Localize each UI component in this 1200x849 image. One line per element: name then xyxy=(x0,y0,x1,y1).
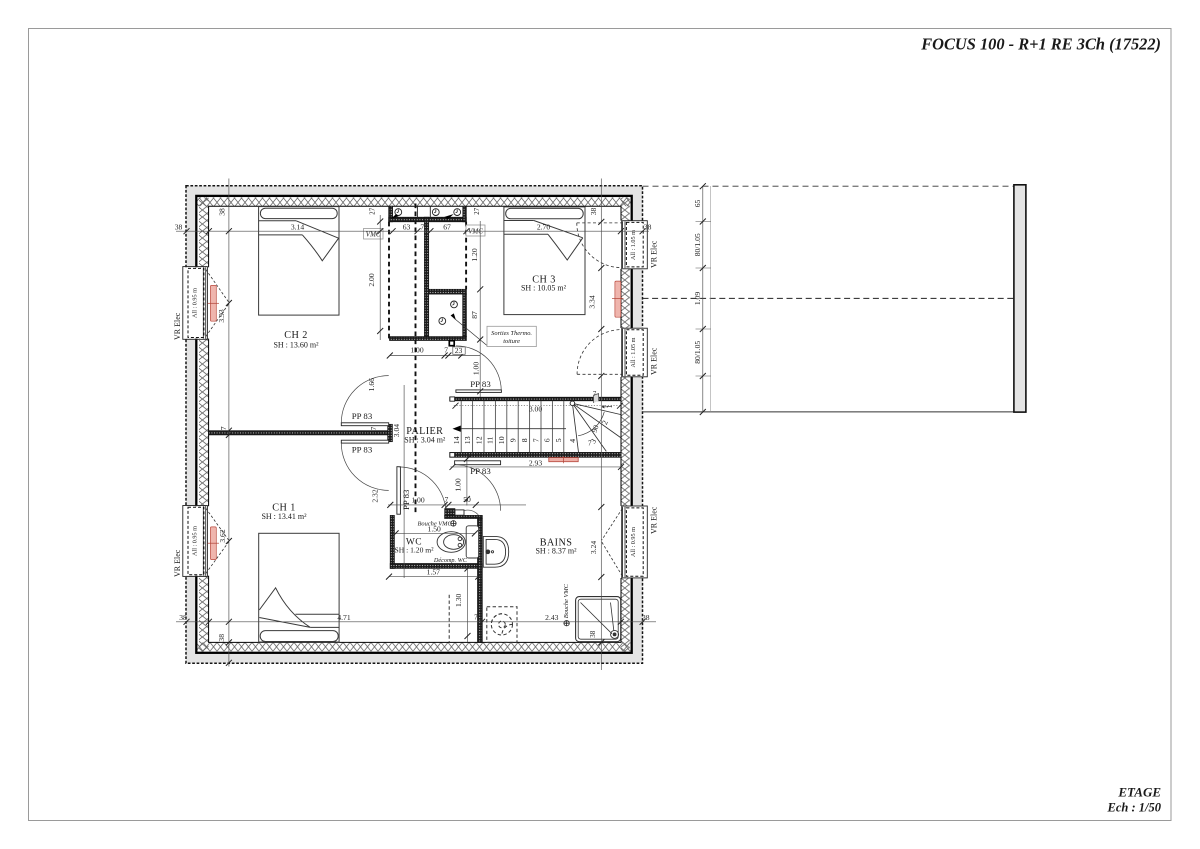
svg-text:SH : 1.20 m²: SH : 1.20 m² xyxy=(395,546,435,555)
svg-text:14: 14 xyxy=(452,436,461,444)
svg-text:5: 5 xyxy=(554,438,563,442)
svg-text:3.93: 3.93 xyxy=(217,309,226,322)
svg-text:65: 65 xyxy=(693,200,702,208)
svg-text:PP 83: PP 83 xyxy=(470,379,491,389)
svg-text:All : 0.95 m: All : 0.95 m xyxy=(191,288,198,318)
svg-text:7: 7 xyxy=(531,438,540,442)
svg-text:All : 0.95 m: All : 0.95 m xyxy=(630,527,637,557)
svg-text:PP 83: PP 83 xyxy=(352,411,373,421)
svg-text:27: 27 xyxy=(474,207,481,214)
svg-text:VR Elec: VR Elec xyxy=(649,240,658,268)
svg-text:6: 6 xyxy=(543,438,552,442)
svg-text:7: 7 xyxy=(588,441,592,448)
svg-text:7: 7 xyxy=(420,223,424,232)
svg-text:VR Elec: VR Elec xyxy=(173,549,182,577)
svg-text:50: 50 xyxy=(463,495,471,504)
svg-text:38: 38 xyxy=(589,208,598,216)
svg-text:PP 83: PP 83 xyxy=(352,445,373,455)
svg-text:7: 7 xyxy=(444,346,448,355)
svg-text:FOCUS 100 - R+1 RE 3Ch (17522): FOCUS 100 - R+1 RE 3Ch (17522) xyxy=(920,35,1161,54)
svg-text:3.04: 3.04 xyxy=(392,424,401,437)
svg-text:Sorties Thermo.: Sorties Thermo. xyxy=(491,330,532,337)
svg-text:1.00: 1.00 xyxy=(410,346,423,355)
svg-text:All : 1.05 m: All : 1.05 m xyxy=(630,337,637,367)
svg-text:SH : 13.60 m²: SH : 13.60 m² xyxy=(273,341,319,350)
svg-text:VMC: VMC xyxy=(366,231,381,239)
svg-text:67: 67 xyxy=(443,223,451,232)
svg-text:2.00: 2.00 xyxy=(367,273,376,286)
svg-text:9: 9 xyxy=(509,438,518,442)
svg-text:1.00: 1.00 xyxy=(454,478,463,491)
svg-text:27: 27 xyxy=(370,207,377,214)
svg-text:12: 12 xyxy=(474,436,483,444)
svg-text:80/1.05: 80/1.05 xyxy=(693,341,702,364)
svg-text:SH : 10.05 m²: SH : 10.05 m² xyxy=(521,284,567,293)
svg-text:38: 38 xyxy=(175,223,183,232)
svg-text:38: 38 xyxy=(179,613,187,622)
svg-text:3.34: 3.34 xyxy=(588,295,597,308)
svg-text:toiture: toiture xyxy=(503,338,520,345)
svg-text:4.71: 4.71 xyxy=(337,613,350,622)
svg-text:38: 38 xyxy=(642,613,650,622)
svg-text:1.57: 1.57 xyxy=(427,568,440,577)
svg-text:1.20: 1.20 xyxy=(470,248,479,261)
svg-text:23: 23 xyxy=(455,346,463,355)
svg-text:Ech : 1/50: Ech : 1/50 xyxy=(1107,801,1162,815)
svg-text:VR Elec: VR Elec xyxy=(173,312,182,340)
svg-text:7: 7 xyxy=(474,615,478,622)
svg-text:VR Elec: VR Elec xyxy=(649,347,658,375)
svg-text:SH : 3.04 m²: SH : 3.04 m² xyxy=(404,436,446,445)
svg-text:2.70: 2.70 xyxy=(537,223,550,232)
svg-text:SH : 8.37 m²: SH : 8.37 m² xyxy=(535,547,577,556)
svg-text:4: 4 xyxy=(568,439,577,443)
svg-text:All : 0.95 m: All : 0.95 m xyxy=(191,526,198,556)
svg-text:38: 38 xyxy=(217,634,226,642)
svg-text:1.00: 1.00 xyxy=(472,362,481,375)
svg-text:38: 38 xyxy=(589,630,597,638)
svg-text:All : 1.05 m: All : 1.05 m xyxy=(630,230,637,260)
svg-text:2.93: 2.93 xyxy=(529,459,542,468)
svg-text:1.66: 1.66 xyxy=(367,378,376,391)
svg-text:1.30: 1.30 xyxy=(454,593,463,606)
svg-text:11: 11 xyxy=(486,436,495,444)
svg-text:ETAGE: ETAGE xyxy=(1117,785,1161,800)
svg-text:87: 87 xyxy=(470,311,479,319)
svg-text:SH : 13.41 m²: SH : 13.41 m² xyxy=(261,512,307,521)
svg-text:63: 63 xyxy=(403,223,411,232)
svg-text:Décomp. WC: Décomp. WC xyxy=(433,557,468,564)
svg-text:3.14: 3.14 xyxy=(291,223,304,232)
svg-text:3.24: 3.24 xyxy=(589,541,598,554)
svg-text:Bouche VMC: Bouche VMC xyxy=(563,583,570,618)
svg-text:80/1.05: 80/1.05 xyxy=(693,233,702,256)
svg-text:7: 7 xyxy=(219,426,228,430)
svg-text:7: 7 xyxy=(593,391,597,398)
svg-text:13: 13 xyxy=(463,436,472,444)
svg-text:CH 2: CH 2 xyxy=(284,330,307,341)
svg-text:1.09: 1.09 xyxy=(693,292,702,305)
svg-text:VR Elec: VR Elec xyxy=(649,506,658,534)
svg-text:38: 38 xyxy=(218,208,227,216)
svg-text:3.62: 3.62 xyxy=(218,529,227,542)
svg-text:7: 7 xyxy=(445,495,449,504)
svg-text:PP 83: PP 83 xyxy=(401,489,411,510)
svg-text:2.32: 2.32 xyxy=(371,489,380,502)
svg-text:7: 7 xyxy=(371,426,378,430)
svg-text:PP 83: PP 83 xyxy=(470,466,491,476)
svg-text:10: 10 xyxy=(497,436,506,444)
svg-text:1.50: 1.50 xyxy=(428,524,441,533)
svg-text:38: 38 xyxy=(644,223,652,232)
svg-text:3.00: 3.00 xyxy=(529,404,542,413)
svg-text:2.43: 2.43 xyxy=(545,613,558,622)
svg-text:8: 8 xyxy=(520,438,529,442)
svg-text:1.00: 1.00 xyxy=(411,496,424,505)
